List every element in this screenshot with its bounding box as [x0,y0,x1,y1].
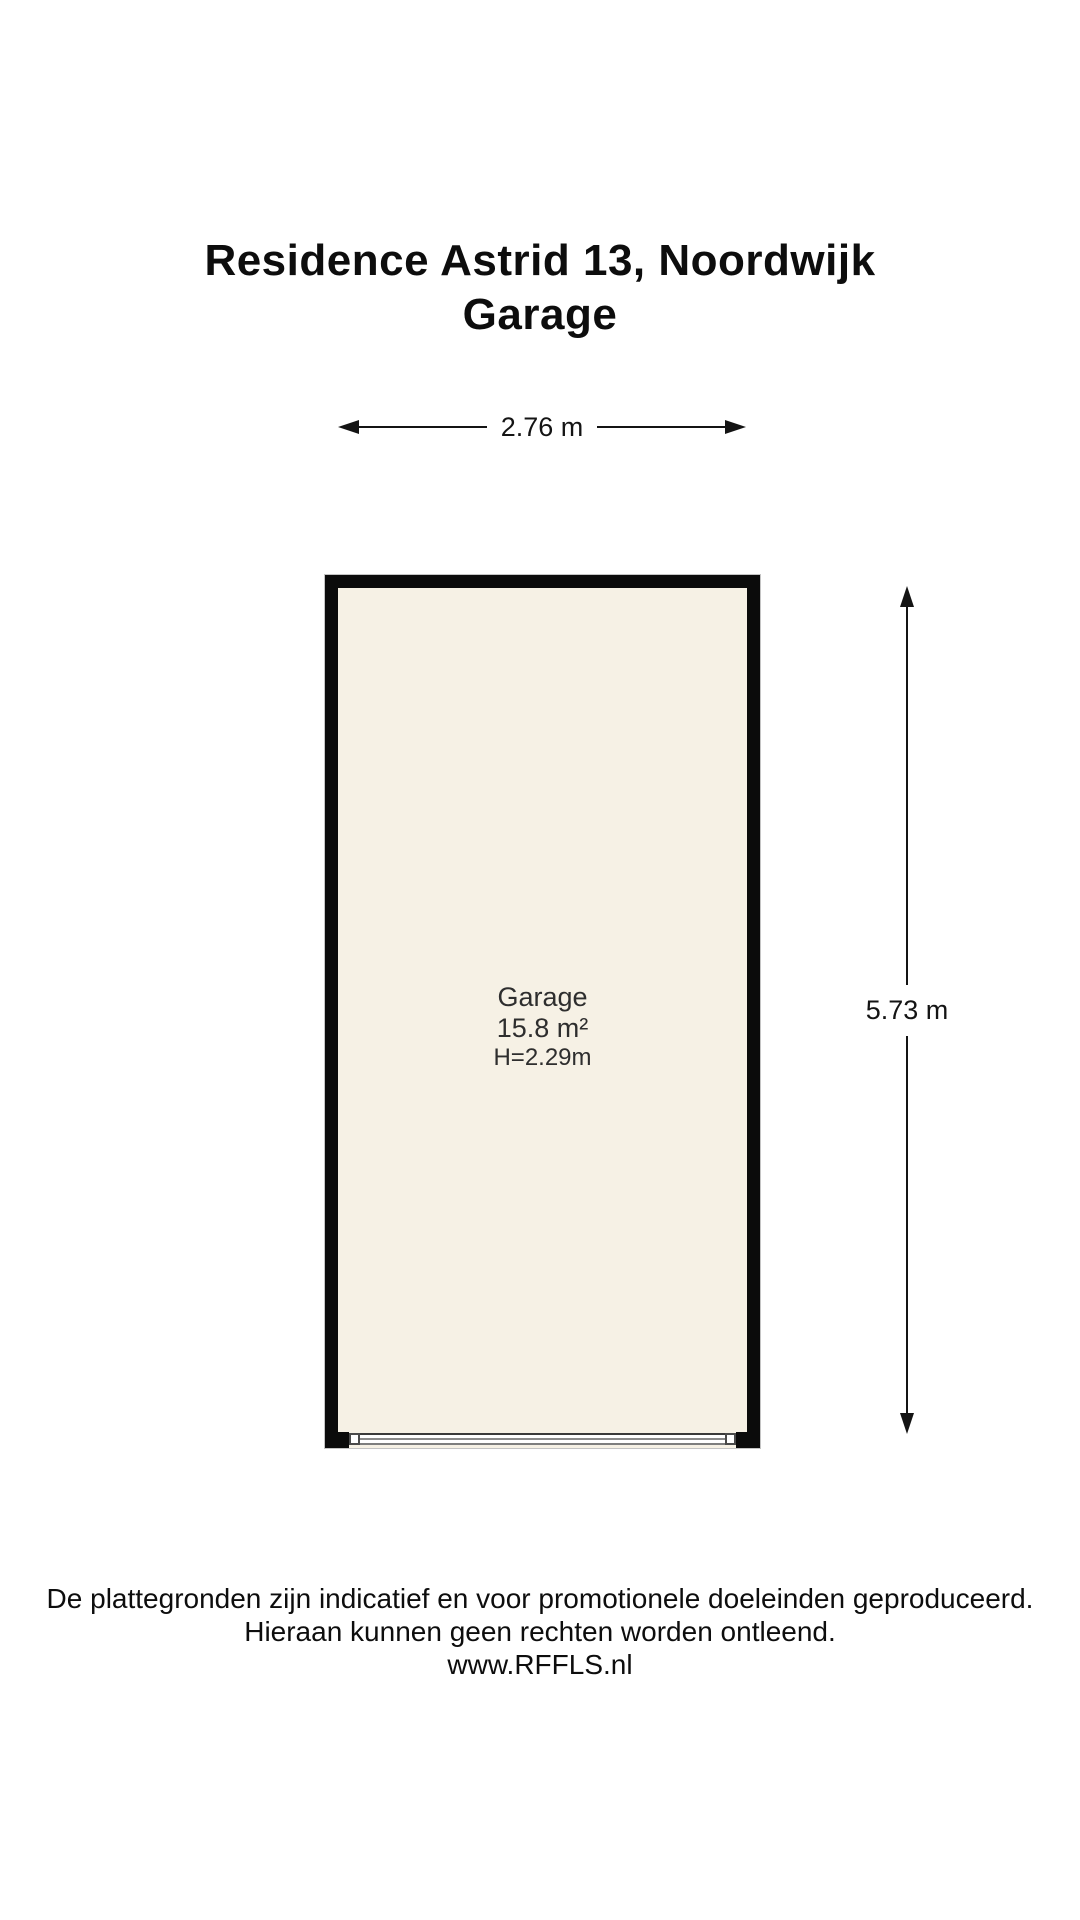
arrow-down-icon [900,1413,914,1434]
room-label: Garage 15.8 m² H=2.29m [338,982,747,1072]
door-jamb-right [725,1433,736,1445]
floorplan-page: Residence Astrid 13, Noordwijk Garage 2.… [0,0,1080,1920]
page-title-line2: Garage [0,288,1080,342]
room-ceiling-height: H=2.29m [338,1044,747,1072]
width-dimension: 2.76 m [338,413,746,441]
arrow-up-icon [900,586,914,607]
height-dimension-label: 5.73 m [866,985,949,1036]
disclaimer-website: www.RFFLS.nl [0,1648,1080,1681]
page-title: Residence Astrid 13, Noordwijk Garage [0,234,1080,342]
dimension-line-right [597,426,725,428]
garage-room: Garage 15.8 m² H=2.29m [325,575,760,1448]
garage-door [349,1433,736,1445]
wall-stub-left [325,1432,349,1448]
arrow-right-icon [725,420,746,434]
disclaimer-line1: De plattegronden zijn indicatief en voor… [0,1582,1080,1615]
room-name: Garage [338,982,747,1013]
width-dimension-label: 2.76 m [487,412,598,443]
disclaimer: De plattegronden zijn indicatief en voor… [0,1582,1080,1681]
dimension-line-left [359,426,487,428]
arrow-left-icon [338,420,359,434]
disclaimer-line2: Hieraan kunnen geen rechten worden ontle… [0,1615,1080,1648]
page-title-line1: Residence Astrid 13, Noordwijk [0,234,1080,288]
dimension-line-top [906,607,908,985]
height-dimension: 5.73 m [845,586,969,1434]
dimension-line-bottom [906,1036,908,1414]
room-area: 15.8 m² [338,1013,747,1044]
wall-stub-right [736,1432,760,1448]
door-jamb-left [349,1433,360,1445]
